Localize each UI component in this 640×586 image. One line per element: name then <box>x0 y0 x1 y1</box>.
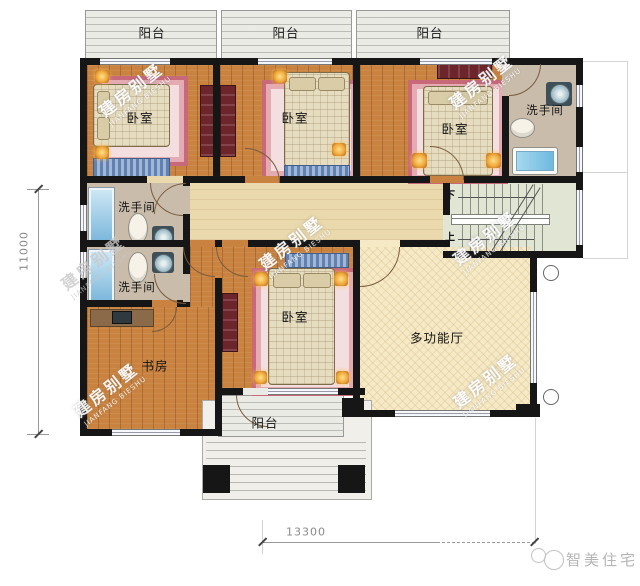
room-label-bedroom-4: 卧室 <box>281 307 308 326</box>
tv-cabinet <box>437 64 492 79</box>
toilet <box>510 118 535 138</box>
pillow <box>428 91 457 105</box>
window <box>530 292 537 383</box>
nightstand-lamp <box>254 272 268 286</box>
window <box>80 205 87 231</box>
computer-monitor <box>112 311 132 324</box>
brand-logo-icon <box>531 548 546 563</box>
dimension-line-horizontal-dashed <box>437 542 535 543</box>
column <box>543 265 559 281</box>
nightstand-lamp <box>334 272 348 286</box>
wall-bedroom-bottom-top <box>248 240 360 247</box>
stair-down-line <box>458 197 534 198</box>
pillow <box>318 77 345 91</box>
balcony-divider <box>216 10 222 58</box>
wall-hall-top <box>400 240 450 247</box>
dimension-line-vertical <box>38 189 39 435</box>
door-opening <box>360 240 400 247</box>
wall-bathroom-bottom-a <box>80 300 152 307</box>
wall-corner-pad <box>516 404 540 417</box>
brand-logo-text: 智美住宅 <box>566 549 638 570</box>
pillow <box>289 77 316 91</box>
stair-up-line <box>458 239 534 240</box>
stair-down-label: 下 <box>445 187 455 202</box>
window <box>112 429 180 436</box>
extension-line <box>583 61 627 62</box>
door-opening <box>147 176 183 183</box>
room-label-bedroom-1: 卧室 <box>126 108 153 127</box>
room-label-bathroom-1: 洗手间 <box>118 199 156 215</box>
bed <box>268 268 335 385</box>
nightstand-lamp <box>273 70 287 83</box>
bathtub <box>512 147 558 175</box>
floor-plan-canvas: 阳台 阳台 阳台 卧室 卧室 卧室 洗手间 洗手间 洗手间 书房 卧室 多功能厅… <box>0 0 640 586</box>
bed-bench <box>93 158 170 177</box>
extension-line <box>262 520 263 554</box>
nightstand-lamp <box>254 371 267 384</box>
extension-line <box>583 258 627 259</box>
nightstand-lamp <box>95 70 109 83</box>
column <box>543 389 559 405</box>
door-opening <box>222 240 248 247</box>
wall-stub <box>215 240 222 247</box>
nightstand-lamp <box>412 153 427 168</box>
dimension-value-horizontal: 13300 <box>286 526 326 539</box>
window <box>576 85 583 107</box>
window <box>258 58 332 65</box>
window <box>268 388 338 395</box>
room-label-balcony-1: 阳台 <box>138 23 165 42</box>
nightstand-lamp <box>332 143 346 156</box>
shower <box>89 188 114 242</box>
room-label-bathroom-right: 洗手间 <box>526 102 564 118</box>
room-label-balcony-bottom: 阳台 <box>251 413 278 432</box>
wall-stair-bottom <box>443 251 583 258</box>
window <box>100 58 170 65</box>
wardrobe <box>222 293 238 352</box>
wall-hall-left <box>353 247 360 410</box>
wall-left <box>80 58 87 436</box>
window <box>576 147 583 172</box>
extension-line <box>627 61 628 259</box>
hallway-floor <box>190 183 443 240</box>
window <box>576 190 583 245</box>
brand-logo-icon <box>544 550 564 570</box>
sink <box>154 254 173 273</box>
wall-corner-pad <box>342 398 364 417</box>
sink <box>550 84 570 104</box>
pillow <box>97 91 110 114</box>
nightstand-lamp <box>95 146 109 159</box>
room-label-balcony-2: 阳台 <box>272 23 299 42</box>
window <box>80 252 87 278</box>
wall-bedroom-divider-2 <box>353 64 360 176</box>
door-opening <box>502 64 509 96</box>
window <box>395 410 490 417</box>
dimension-line-horizontal <box>262 542 437 543</box>
porch-pillar-left <box>203 465 230 493</box>
extension-line <box>535 418 536 544</box>
room-label-bedroom-3: 卧室 <box>441 119 468 138</box>
wardrobe <box>220 85 236 157</box>
wall-hallway-bottom <box>80 240 190 247</box>
door-opening <box>190 240 215 247</box>
balcony-divider <box>351 10 357 58</box>
room-label-multi-hall: 多功能厅 <box>410 328 464 347</box>
door-opening <box>243 388 268 395</box>
pillow <box>459 91 488 105</box>
room-label-balcony-3: 阳台 <box>416 23 443 42</box>
pillow <box>303 273 331 288</box>
extension-line <box>583 172 627 173</box>
nightstand-lamp <box>486 153 501 168</box>
room-label-study: 书房 <box>141 356 168 375</box>
nightstand-lamp <box>336 371 349 384</box>
shower <box>89 250 114 302</box>
bathtub-water <box>516 151 554 171</box>
room-label-bedroom-2: 卧室 <box>281 108 308 127</box>
dimension-value-vertical: 11000 <box>18 231 31 271</box>
room-label-bathroom-2: 洗手间 <box>118 279 156 295</box>
porch-pillar-right <box>338 465 365 493</box>
wall-study-right <box>215 278 222 436</box>
bed-bench <box>285 253 349 268</box>
wall-bedroom-divider-1 <box>213 64 220 176</box>
stair-up-label: 上 <box>445 229 455 244</box>
pillow <box>97 117 110 140</box>
window <box>420 58 492 65</box>
pillow <box>273 273 301 288</box>
stair-rail <box>451 214 550 225</box>
